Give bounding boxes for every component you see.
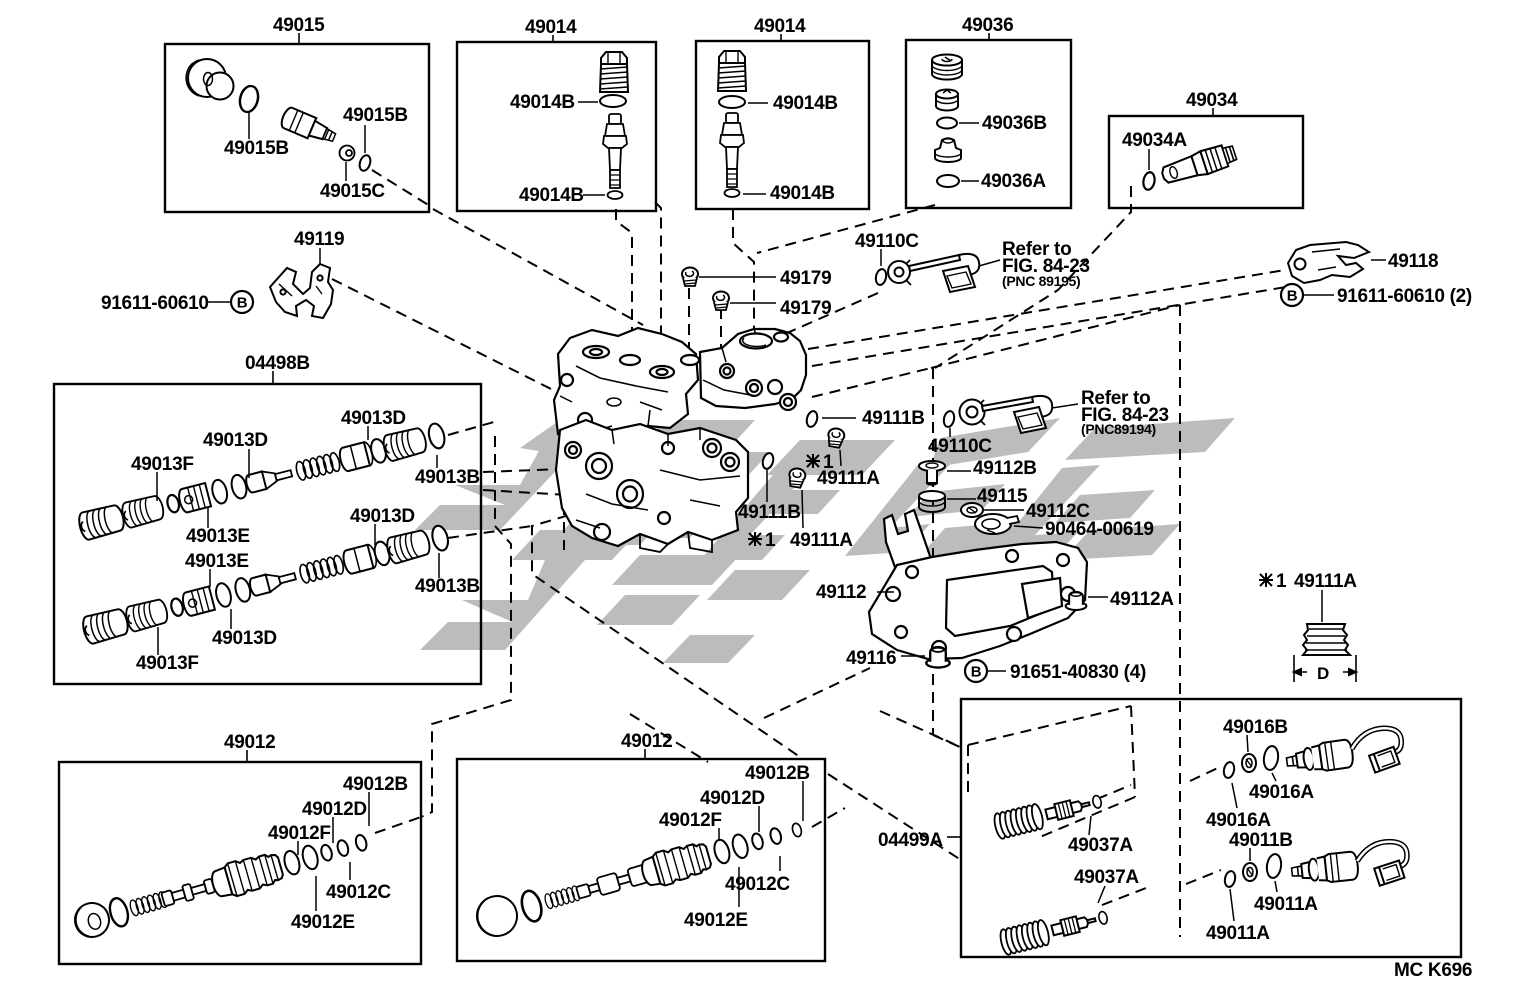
svg-text:49015B: 49015B <box>343 105 408 126</box>
svg-text:(PNC89194): (PNC89194) <box>1081 421 1156 437</box>
svg-text:49014B: 49014B <box>773 93 838 114</box>
svg-text:04499A: 04499A <box>878 830 943 851</box>
svg-text:49111B: 49111B <box>862 408 925 429</box>
svg-text:49012C: 49012C <box>725 874 790 895</box>
svg-text:49034: 49034 <box>1186 90 1238 111</box>
svg-text:49112A: 49112A <box>1110 589 1174 610</box>
svg-text:49014: 49014 <box>525 17 577 38</box>
svg-text:49013F: 49013F <box>136 653 199 674</box>
svg-text:B: B <box>971 664 982 681</box>
svg-text:49012B: 49012B <box>343 774 408 795</box>
svg-text:49112: 49112 <box>816 582 866 603</box>
svg-text:49012D: 49012D <box>302 799 367 820</box>
svg-text:49118: 49118 <box>1388 251 1438 272</box>
svg-text:49015: 49015 <box>273 15 325 36</box>
svg-text:49116: 49116 <box>846 648 896 669</box>
svg-text:49012F: 49012F <box>268 823 331 844</box>
svg-text:49013D: 49013D <box>350 506 415 527</box>
svg-text:49014B: 49014B <box>519 185 584 206</box>
svg-text:B: B <box>1287 288 1298 305</box>
svg-text:1: 1 <box>765 530 776 551</box>
svg-text:49012E: 49012E <box>291 912 355 933</box>
svg-text:49112B: 49112B <box>973 458 1037 479</box>
svg-text:49013D: 49013D <box>203 430 268 451</box>
svg-text:04498B: 04498B <box>245 353 310 374</box>
svg-text:49115: 49115 <box>977 486 1028 507</box>
svg-text:D: D <box>1317 664 1329 683</box>
svg-text:49012C: 49012C <box>326 882 391 903</box>
svg-text:49012E: 49012E <box>684 910 748 931</box>
svg-text:49110C: 49110C <box>855 231 919 252</box>
svg-text:49015B: 49015B <box>224 138 289 159</box>
svg-text:MC K696: MC K696 <box>1394 960 1472 981</box>
svg-text:1: 1 <box>1276 571 1287 592</box>
svg-text:91611-60610 (2): 91611-60610 (2) <box>1337 286 1472 307</box>
svg-text:49034A: 49034A <box>1122 130 1187 151</box>
svg-text:49012: 49012 <box>224 732 275 753</box>
svg-text:49111A: 49111A <box>1294 571 1357 592</box>
svg-text:49012B: 49012B <box>745 763 810 784</box>
svg-text:49014B: 49014B <box>770 183 835 204</box>
svg-text:49016A: 49016A <box>1206 810 1271 831</box>
svg-text:49011B: 49011B <box>1229 830 1293 851</box>
svg-text:49110C: 49110C <box>928 436 992 457</box>
svg-text:49013E: 49013E <box>186 526 250 547</box>
svg-text:49036: 49036 <box>962 15 1013 36</box>
svg-text:49119: 49119 <box>294 229 344 250</box>
svg-text:49012F: 49012F <box>659 810 722 831</box>
svg-text:49036A: 49036A <box>981 171 1046 192</box>
svg-text:49014B: 49014B <box>510 92 575 113</box>
svg-text:49013D: 49013D <box>212 628 277 649</box>
svg-text:49179: 49179 <box>780 268 831 289</box>
svg-text:B: B <box>237 295 248 312</box>
svg-text:49012D: 49012D <box>700 788 765 809</box>
svg-text:49111A: 49111A <box>790 530 853 551</box>
svg-text:49012: 49012 <box>621 731 672 752</box>
svg-text:91651-40830 (4): 91651-40830 (4) <box>1010 662 1146 683</box>
svg-text:49111B: 49111B <box>738 502 801 523</box>
svg-text:49013D: 49013D <box>341 408 406 429</box>
svg-text:49179: 49179 <box>780 298 831 319</box>
svg-text:49013E: 49013E <box>185 551 249 572</box>
svg-text:49015C: 49015C <box>320 181 385 202</box>
svg-text:49014: 49014 <box>754 16 806 37</box>
svg-text:49011A: 49011A <box>1254 894 1318 915</box>
svg-text:90464-00619: 90464-00619 <box>1045 519 1154 540</box>
svg-text:49011A: 49011A <box>1206 923 1270 944</box>
svg-text:49013B: 49013B <box>415 576 480 597</box>
svg-text:1: 1 <box>823 452 834 473</box>
svg-text:49013F: 49013F <box>131 454 194 475</box>
svg-text:49036B: 49036B <box>982 113 1047 134</box>
svg-text:91611-60610: 91611-60610 <box>101 293 209 314</box>
svg-text:49016B: 49016B <box>1223 717 1288 738</box>
svg-text:49037A: 49037A <box>1074 867 1139 888</box>
svg-text:49016A: 49016A <box>1249 782 1314 803</box>
svg-text:(PNC 89195): (PNC 89195) <box>1002 273 1080 289</box>
svg-text:49037A: 49037A <box>1068 835 1133 856</box>
svg-text:49013B: 49013B <box>415 467 480 488</box>
